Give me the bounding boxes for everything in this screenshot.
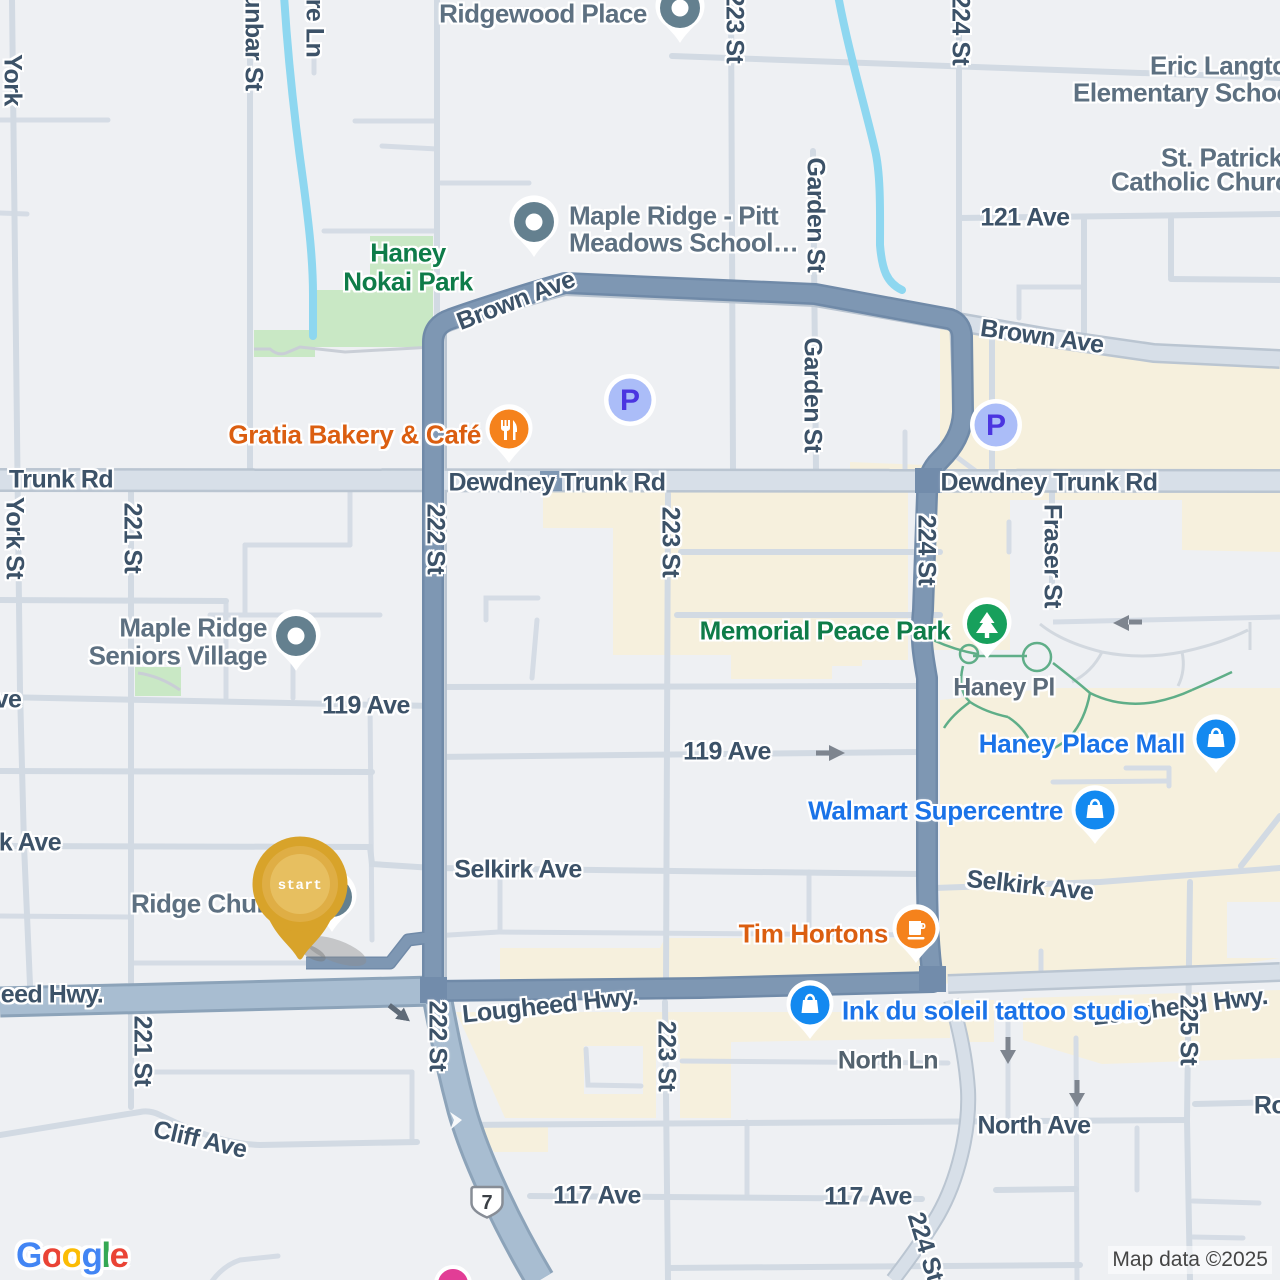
svg-text:7: 7 [481, 1192, 492, 1214]
svg-text:start: start [278, 878, 323, 894]
svg-text:P: P [986, 409, 1006, 442]
svg-text:P: P [620, 384, 640, 417]
